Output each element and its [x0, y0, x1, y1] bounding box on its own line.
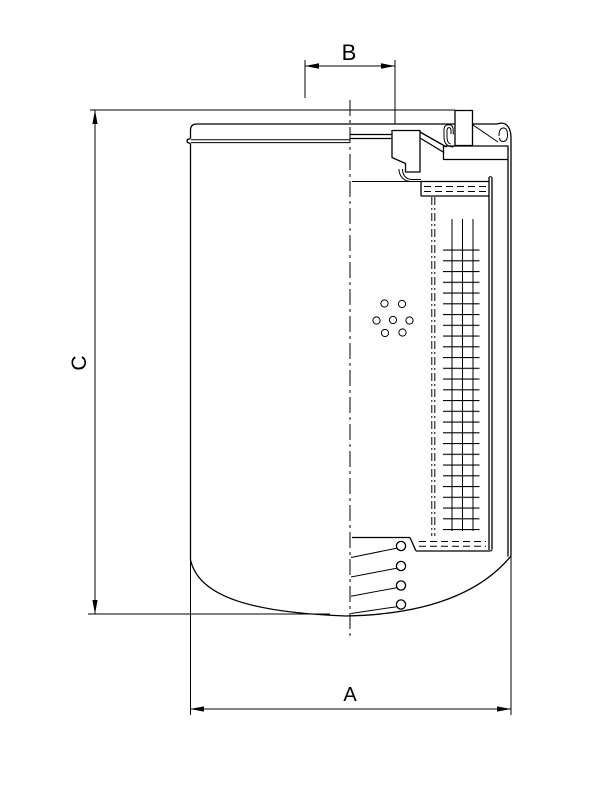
coil-spring: [351, 541, 406, 613]
tapping-plate: [350, 135, 392, 139]
dimension-c: C: [68, 110, 455, 614]
media-grid: [443, 219, 480, 531]
cap-corner: [191, 124, 198, 139]
cover-cone: [420, 132, 447, 153]
dimension-a-label: A: [343, 684, 357, 706]
perforation-holes: [373, 300, 413, 337]
arrowhead-left-icon: [305, 63, 319, 69]
bottom-dome: [191, 556, 512, 616]
arrowhead-down-icon: [92, 600, 97, 614]
technical-drawing: B C A: [0, 0, 612, 792]
thread-boss: [392, 131, 420, 173]
cap-inner-curl: [444, 125, 454, 147]
seal-retainer-plate: [444, 146, 509, 160]
spring-seat: [352, 169, 421, 182]
arrowhead-up-icon: [92, 110, 97, 124]
dimension-c-label: C: [68, 355, 91, 370]
arrowhead-right-icon: [497, 706, 511, 711]
center-tube: [432, 197, 435, 536]
arrowhead-left-icon: [190, 706, 204, 711]
dimension-b-label: B: [342, 40, 357, 65]
gasket: [455, 111, 473, 146]
arrowhead-right-icon: [381, 63, 395, 69]
left-seam-lip: [187, 139, 190, 144]
